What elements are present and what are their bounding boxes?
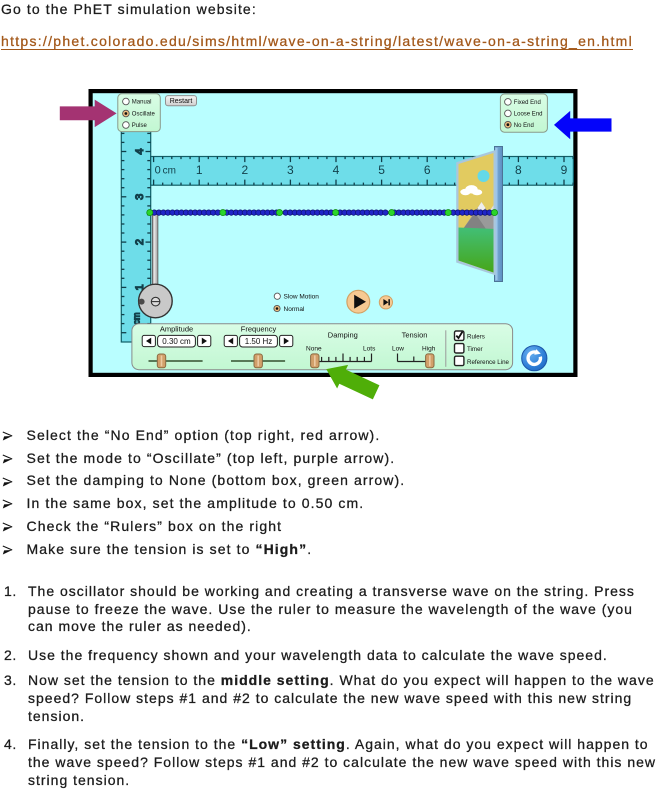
svg-text:Manual: Manual xyxy=(132,100,152,106)
svg-text:4: 4 xyxy=(333,163,340,177)
svg-text:Frequency: Frequency xyxy=(241,325,277,334)
svg-text:Slow Motion: Slow Motion xyxy=(284,294,320,301)
svg-text:2: 2 xyxy=(241,163,248,177)
svg-text:Lots: Lots xyxy=(363,345,376,352)
svg-text:8: 8 xyxy=(515,163,522,177)
svg-text:3: 3 xyxy=(134,194,146,200)
svg-text:0: 0 xyxy=(155,165,161,177)
svg-text:2: 2 xyxy=(134,239,146,245)
svg-text:5: 5 xyxy=(378,163,385,177)
svg-text:Tension: Tension xyxy=(402,331,428,340)
svg-text:Damping: Damping xyxy=(328,331,358,340)
svg-text:High: High xyxy=(422,345,436,352)
svg-text:Rulers: Rulers xyxy=(467,334,485,341)
svg-text:3: 3 xyxy=(287,163,294,177)
svg-text:Normal: Normal xyxy=(284,306,306,313)
svg-text:Low: Low xyxy=(392,345,404,352)
svg-text:cm: cm xyxy=(132,313,142,325)
svg-text:Oscillate: Oscillate xyxy=(132,112,156,118)
svg-text:cm: cm xyxy=(163,166,176,177)
svg-text:Amplitude: Amplitude xyxy=(160,325,193,334)
svg-text:6: 6 xyxy=(424,163,431,177)
svg-text:Reference Line: Reference Line xyxy=(467,359,510,366)
svg-text:No End: No End xyxy=(514,123,534,129)
svg-text:1.50 Hz: 1.50 Hz xyxy=(245,337,273,346)
svg-text:4: 4 xyxy=(134,148,146,154)
svg-text:Restart: Restart xyxy=(170,98,193,105)
svg-text:1: 1 xyxy=(196,163,203,177)
svg-text:0.30 cm: 0.30 cm xyxy=(162,337,191,346)
svg-text:Pulse: Pulse xyxy=(132,123,148,129)
svg-text:Timer: Timer xyxy=(467,346,483,353)
svg-text:Loose End: Loose End xyxy=(514,112,543,118)
svg-text:9: 9 xyxy=(561,163,568,177)
svg-text:Fixed End: Fixed End xyxy=(514,100,541,106)
svg-text:None: None xyxy=(306,345,322,352)
